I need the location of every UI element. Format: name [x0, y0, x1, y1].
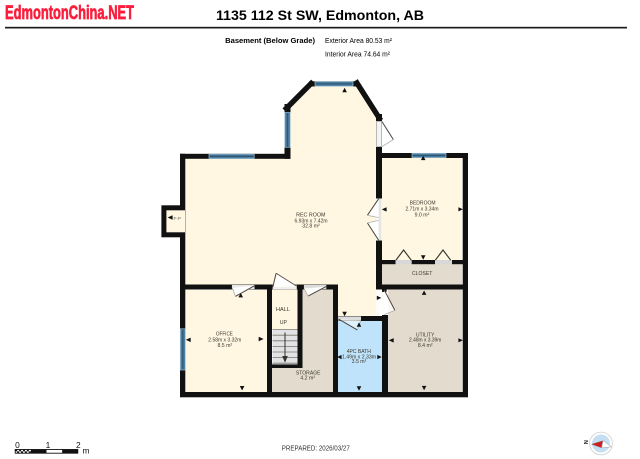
svg-text:32.8 m²: 32.8 m² [302, 224, 320, 230]
svg-text:9.0 m²: 9.0 m² [415, 213, 430, 219]
svg-text:PREPARED: 2026/03/27: PREPARED: 2026/03/27 [282, 445, 350, 452]
svg-text:Interior Area 74.64 m²: Interior Area 74.64 m² [325, 49, 390, 58]
svg-text:0: 0 [15, 440, 20, 450]
svg-text:EdmontonChina.NET: EdmontonChina.NET [5, 3, 134, 24]
svg-text:Exterior Area 80.53 m²: Exterior Area 80.53 m² [325, 36, 392, 45]
svg-text:Basement (Below Grade): Basement (Below Grade) [225, 36, 315, 45]
svg-text:1: 1 [46, 440, 51, 450]
svg-text:F-P: F-P [174, 216, 181, 221]
svg-text:1135 112 St SW, Edmonton, AB: 1135 112 St SW, Edmonton, AB [216, 7, 424, 23]
svg-text:3.5 m²: 3.5 m² [352, 359, 367, 365]
svg-text:4.2 m²: 4.2 m² [300, 376, 315, 382]
svg-text:8.4 m²: 8.4 m² [418, 343, 433, 349]
svg-text:8.5 m²: 8.5 m² [217, 343, 232, 349]
svg-text:2: 2 [76, 440, 81, 450]
svg-text:N: N [584, 440, 590, 444]
svg-text:UP: UP [280, 320, 288, 326]
svg-text:CLOSET: CLOSET [412, 271, 433, 277]
svg-text:HALL: HALL [276, 307, 290, 313]
svg-text:m: m [83, 445, 90, 455]
